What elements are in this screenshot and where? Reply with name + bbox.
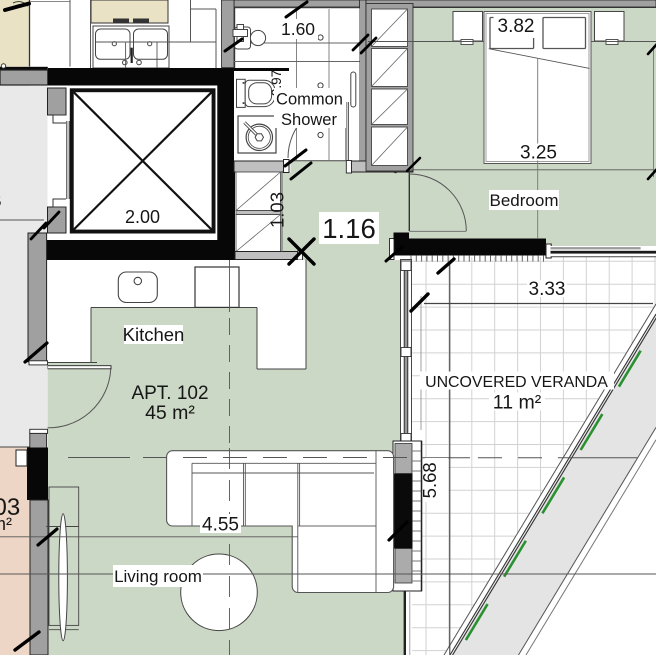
svg-text:1.60: 1.60 <box>281 19 315 39</box>
svg-text:Living room: Living room <box>114 567 202 586</box>
svg-text:APT. 102: APT. 102 <box>131 383 208 404</box>
svg-text:UNCOVERED VERANDA: UNCOVERED VERANDA <box>425 374 608 391</box>
svg-text:4.55: 4.55 <box>202 515 239 536</box>
svg-text:11 m²: 11 m² <box>493 392 542 414</box>
svg-text:3.33: 3.33 <box>529 279 566 300</box>
svg-text:Shower: Shower <box>281 111 337 129</box>
svg-text:Bedroom: Bedroom <box>490 191 559 210</box>
svg-text:5: 5 <box>0 194 1 211</box>
svg-text:3.25: 3.25 <box>520 143 557 164</box>
svg-text:3.82: 3.82 <box>498 16 535 37</box>
svg-text:5.68: 5.68 <box>419 462 440 498</box>
svg-text:1.16: 1.16 <box>322 213 376 244</box>
svg-text:2.00: 2.00 <box>125 207 160 227</box>
svg-text:45 m²: 45 m² <box>145 402 195 424</box>
svg-text:Common: Common <box>276 91 343 109</box>
svg-text:Kitchen: Kitchen <box>123 324 185 345</box>
svg-text:m²: m² <box>0 514 12 534</box>
svg-text:1.03: 1.03 <box>267 192 288 228</box>
